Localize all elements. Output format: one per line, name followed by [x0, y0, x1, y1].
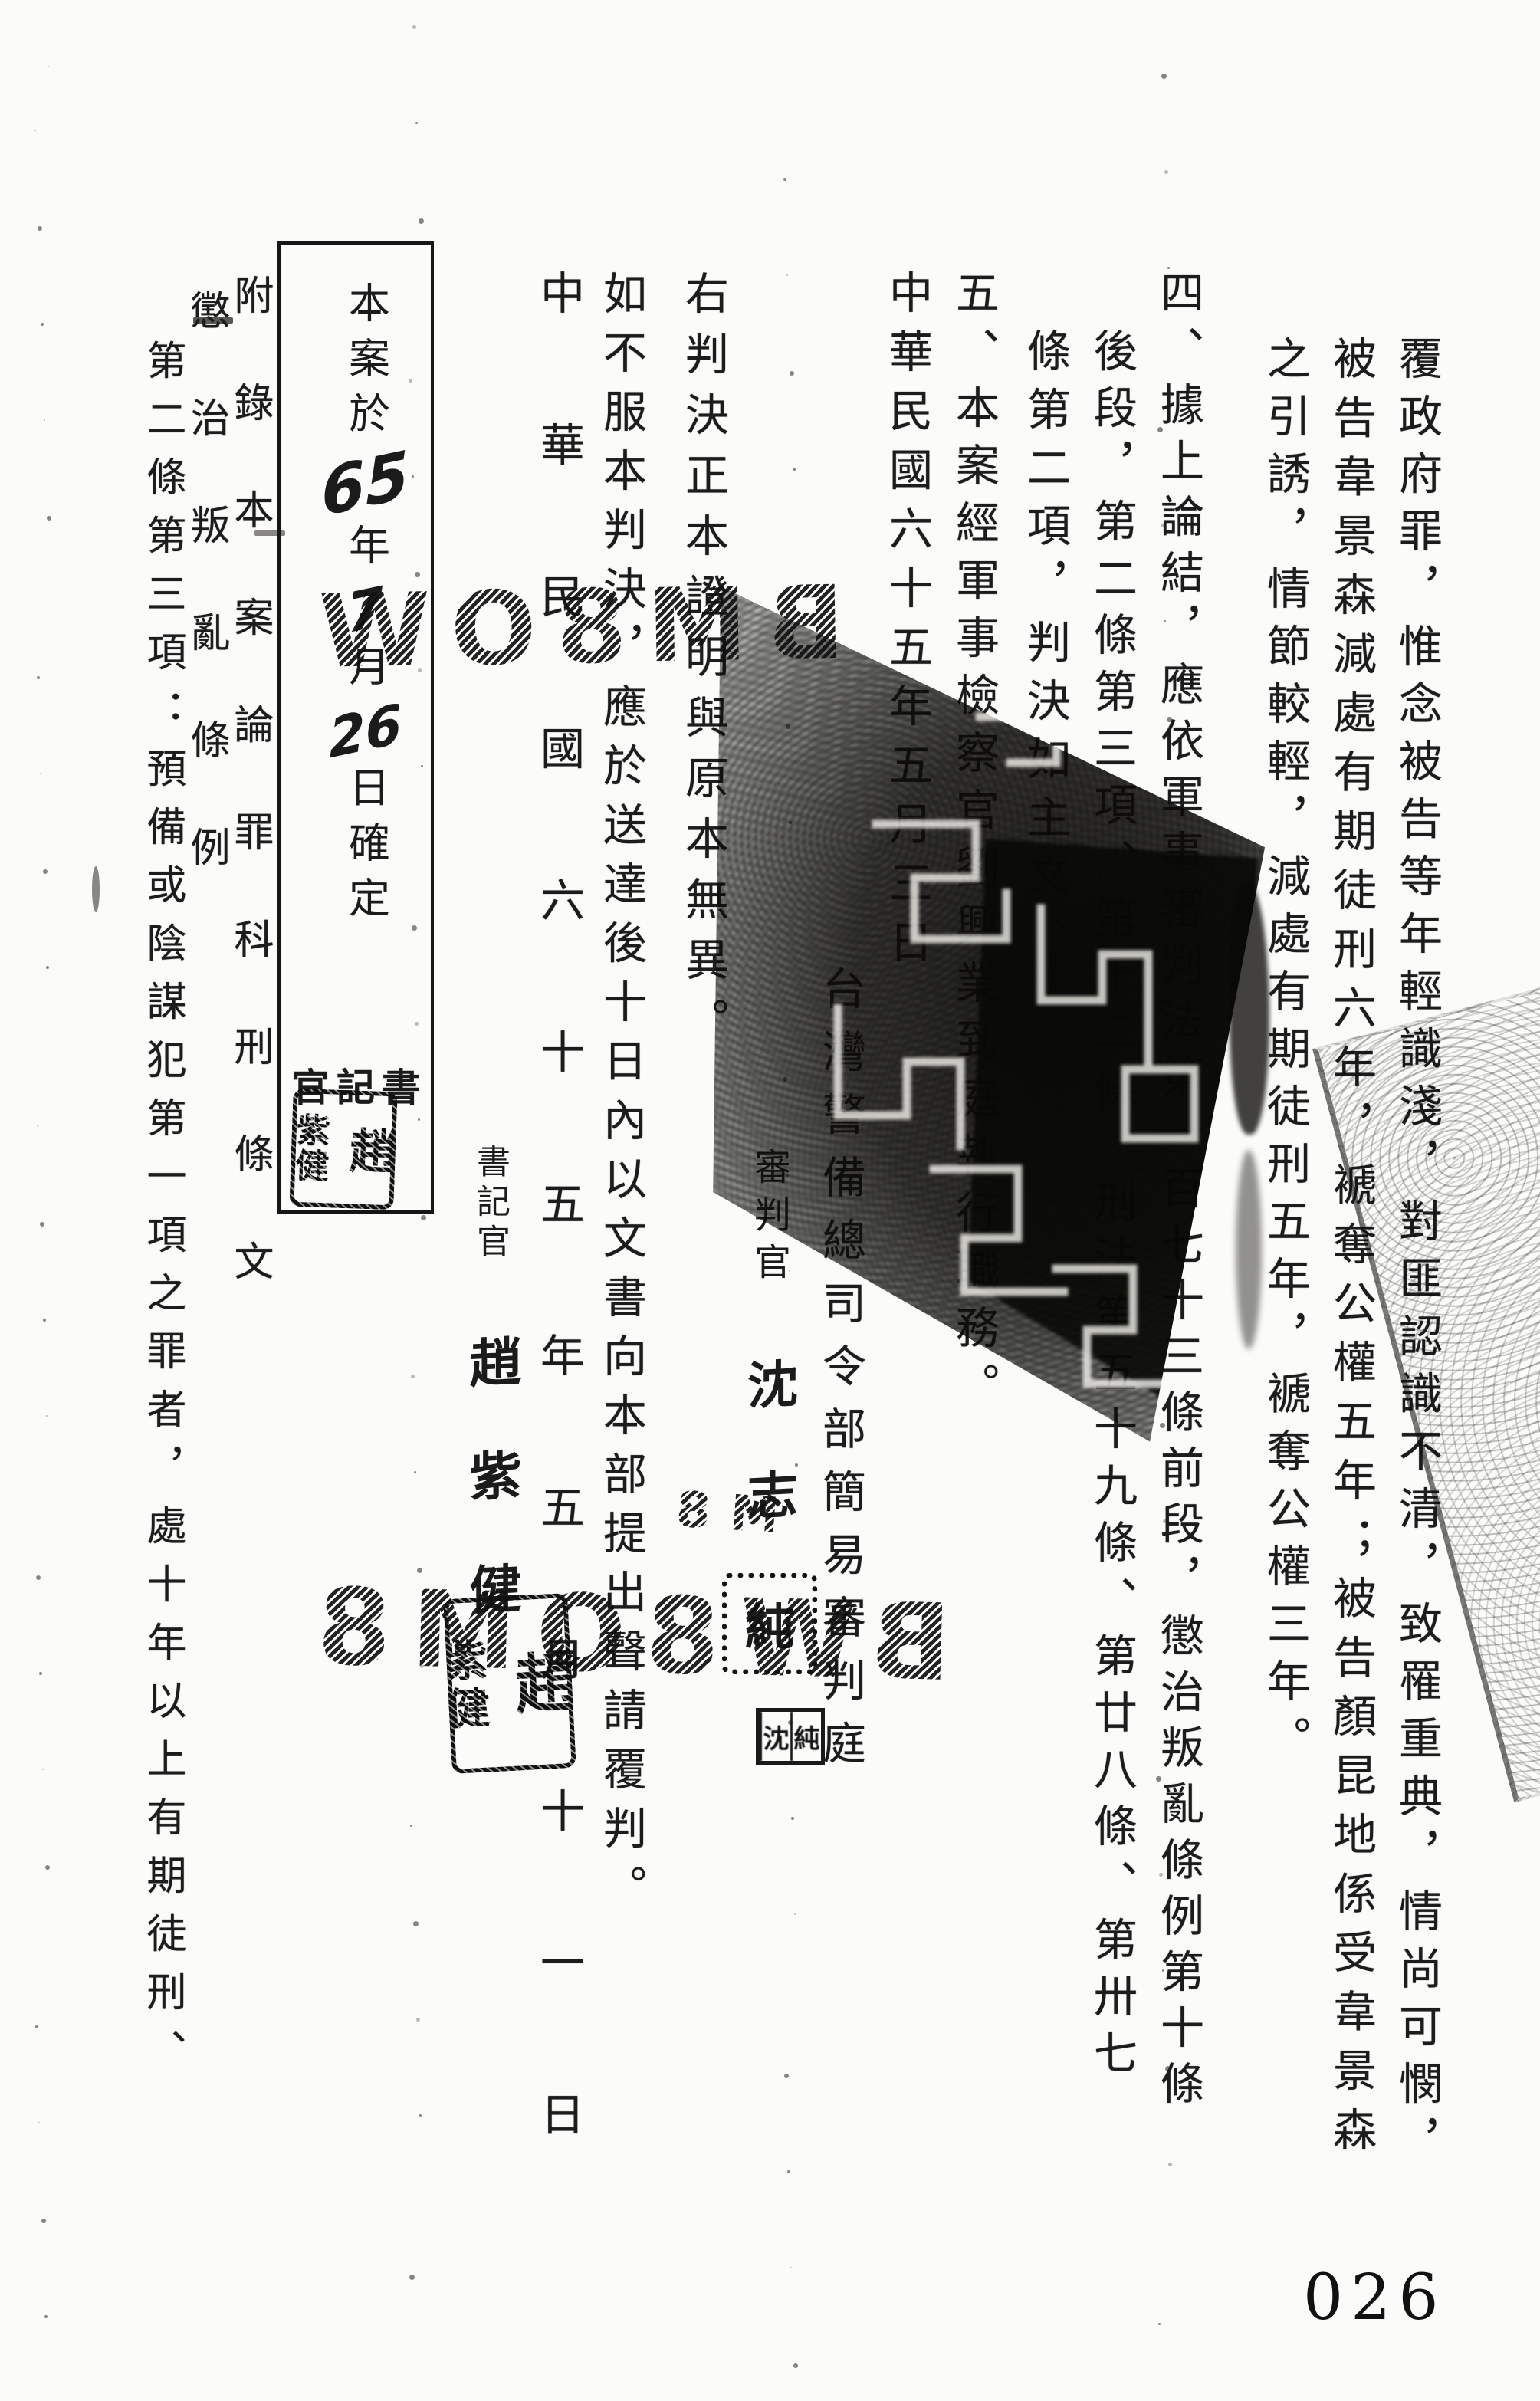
mirrored-stamp-offset-1: BM8OW	[298, 564, 846, 691]
noise-speck	[1168, 2163, 1172, 2166]
noise-speck	[41, 323, 44, 326]
noise-speck	[416, 2018, 420, 2022]
noise-speck	[38, 2122, 40, 2123]
cert-seal-right-char: 趙	[333, 1125, 403, 1175]
scanned-judgment-page: 覆政府罪，惟念被告等年輕識淺，對匪認識不清，致罹重典，情尚可憫，被告韋景森減處有…	[0, 0, 1540, 2401]
col-service-date: 中華民國六十五年五月十一日	[536, 270, 580, 2243]
noise-speck	[43, 869, 48, 874]
ink-blob	[1236, 1150, 1262, 1349]
noise-speck	[791, 1817, 794, 1820]
noise-speck	[413, 1921, 419, 1926]
noise-speck	[790, 2267, 792, 2268]
page-number: 026	[1303, 2261, 1446, 2334]
noise-speck	[46, 966, 49, 969]
noise-speck	[414, 1471, 416, 1473]
noise-speck	[409, 2275, 415, 2280]
noise-speck	[1161, 74, 1167, 79]
printed-cert-text: 本案於	[342, 281, 388, 447]
noise-speck	[44, 419, 45, 421]
noise-speck	[46, 1415, 48, 1417]
case-finalized-certification-box: 本案於65年7月26日確定 書記官 趙 紫健	[277, 241, 434, 1214]
cert-box-clerk-seal: 趙 紫健	[289, 1089, 397, 1210]
noise-speck	[37, 676, 40, 679]
noise-speck	[419, 218, 424, 224]
noise-speck	[421, 1215, 426, 1220]
handwritten-date-part: 26	[328, 696, 403, 766]
noise-speck	[41, 2219, 46, 2223]
printed-cert-text: 年	[342, 524, 388, 579]
noise-speck	[411, 1375, 415, 1378]
judge-personal-seal: 沈純	[756, 1708, 825, 1765]
noise-speck	[47, 516, 51, 521]
mirrored-stamp-offset-2: BW8OM8	[296, 1565, 952, 1705]
noise-speck	[34, 130, 36, 131]
noise-speck	[44, 2315, 48, 2318]
printed-cert-text: 日確定	[342, 766, 388, 931]
noise-speck	[42, 1769, 44, 1770]
noise-speck	[794, 1913, 796, 1915]
noise-speck	[790, 371, 794, 376]
noise-speck	[38, 226, 42, 231]
noise-speck	[1164, 170, 1168, 174]
handwritten-date-part: 65	[320, 442, 410, 526]
noise-speck	[43, 1319, 46, 1322]
noise-speck	[1158, 2323, 1161, 2325]
clerk-title: 書記官	[473, 1144, 507, 1263]
noise-speck	[48, 66, 49, 67]
col-appendix-title: 附錄本案論罪科刑條文	[229, 274, 269, 1348]
col-reason-line-3: 之引誘，情節較輕，減處有期徒刑五年，褫奪公權三年。	[1263, 336, 1307, 1773]
noise-speck	[40, 1222, 44, 1227]
noise-speck	[39, 1672, 42, 1675]
judge-seal-glyph-left: 純	[790, 1712, 821, 1761]
noise-speck	[1167, 267, 1170, 269]
scan-edge-streak	[92, 866, 100, 912]
noise-speck	[795, 1463, 798, 1467]
noise-speck	[419, 2114, 422, 2117]
noise-speck	[36, 1575, 41, 1580]
noise-speck	[412, 25, 416, 29]
noise-speck	[783, 178, 786, 181]
judge-seal-glyph-right: 沈	[760, 1712, 790, 1761]
cert-seal-left-chars: 紫健	[283, 1112, 334, 1184]
noise-speck	[793, 2363, 798, 2368]
noise-speck	[784, 2074, 789, 2078]
noise-speck	[415, 122, 418, 124]
col-statute-text: 第二條第三項：預備或陰謀犯第一項之罪者，處十年以上有期徒刑、	[142, 340, 182, 2087]
noise-speck	[410, 1825, 412, 1827]
noise-speck	[793, 468, 796, 471]
noise-speck	[786, 274, 788, 276]
col-statute-name: 懲治叛亂條例	[186, 290, 225, 934]
mirrored-stamp-fragment: M8	[655, 1480, 781, 1545]
noise-speck	[37, 1125, 38, 1127]
noise-speck	[35, 2025, 38, 2028]
noise-speck	[40, 773, 41, 774]
judge-name: 沈志	[742, 1357, 793, 1580]
noise-speck	[787, 2170, 790, 2173]
noise-speck	[45, 1865, 50, 1870]
